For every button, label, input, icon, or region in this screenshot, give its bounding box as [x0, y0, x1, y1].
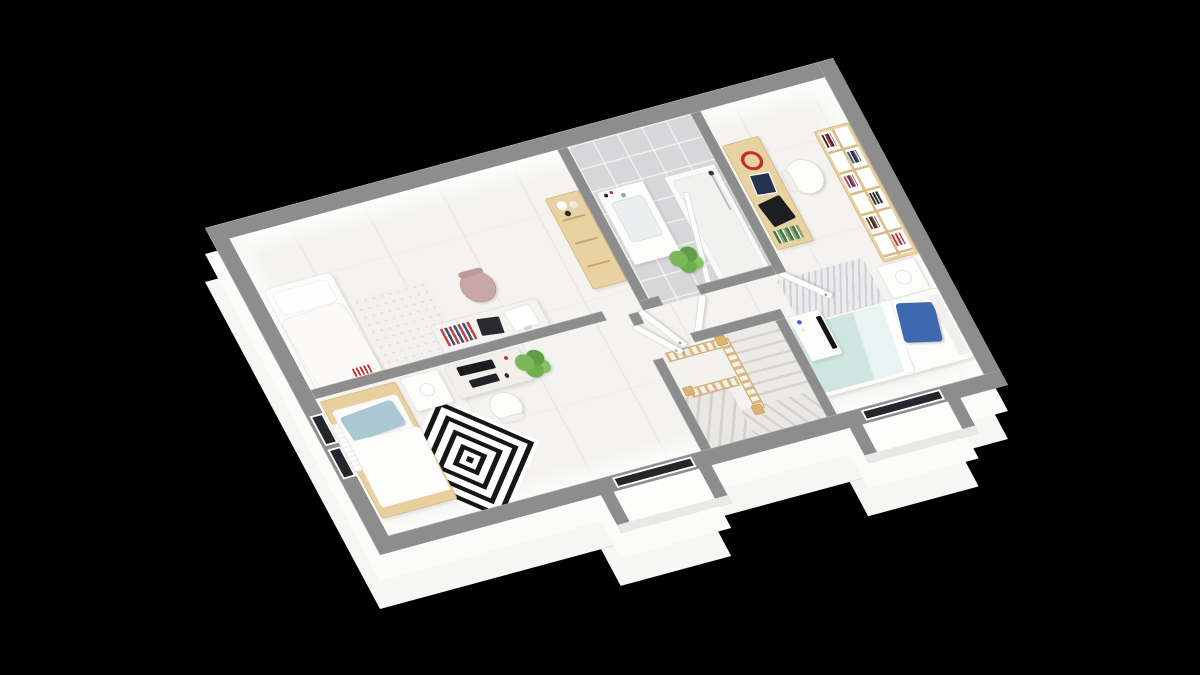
white-monitor: [503, 303, 541, 332]
door-handle: [674, 349, 678, 352]
green-books: [773, 225, 805, 244]
lamp-east: [892, 268, 914, 286]
bottle-dark: [603, 193, 609, 197]
door-handle: [824, 293, 828, 296]
book-row: [440, 322, 478, 347]
vase-cream: [567, 199, 580, 209]
drawer-line: [575, 237, 599, 245]
decor-blue: [796, 320, 803, 325]
red-headphones: [737, 149, 767, 173]
decor-white: [800, 328, 806, 332]
bottle-red: [609, 191, 614, 195]
keyboard: [469, 373, 501, 388]
mouse: [504, 373, 510, 379]
floorplan-stage: [0, 0, 1200, 675]
drawer-line: [587, 260, 611, 268]
tablet: [748, 172, 778, 197]
jar-dark: [564, 210, 572, 217]
door-handle: [678, 341, 682, 344]
black-laptop: [476, 316, 505, 336]
lamp-southwest: [417, 382, 438, 398]
faucet: [620, 193, 627, 198]
black-laptop-east: [758, 195, 797, 228]
desk-decor-red: [503, 356, 509, 360]
